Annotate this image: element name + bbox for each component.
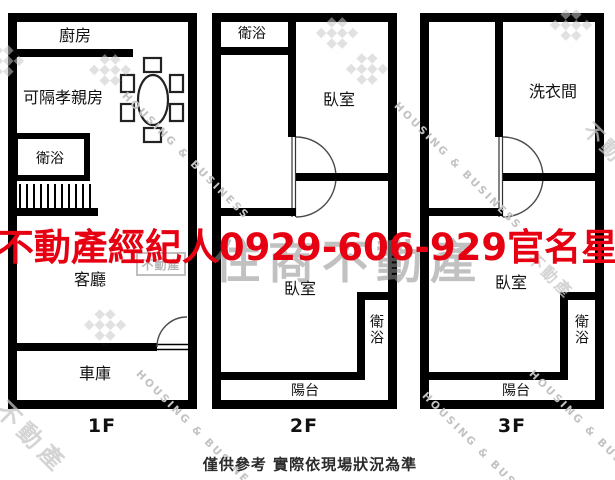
- room-label-laundry: 洗衣間: [529, 78, 577, 102]
- room-label-bathroom: 衛浴: [571, 314, 591, 346]
- bathroom-rear-wall-top: [357, 292, 388, 300]
- bathroom-wall-left: [560, 292, 568, 380]
- garage-wall: [12, 343, 157, 351]
- laundry-wall: [503, 173, 595, 181]
- room-label-bathroom-front: 衛浴: [238, 23, 266, 43]
- agent-overlay: 不動產經紀人0929-606-929官名星: [0, 217, 615, 271]
- stairs-wall: [12, 208, 98, 216]
- room-label-balcony: 陽台: [291, 380, 319, 400]
- room-label-bedroom: 臥室: [495, 269, 527, 293]
- divider-wall: [288, 17, 296, 137]
- floorplan-3f: 洗衣間 臥室 衛浴 陽台: [420, 13, 604, 409]
- floorplan-image: 廚房 可隔孝親房 衛浴 客廳 車庫 1F 衛浴 臥室 臥室 衛浴 陽台 2F: [0, 0, 615, 480]
- door-threshold: [157, 345, 188, 350]
- door-arc: [157, 317, 187, 347]
- floor-label-2f: 2F: [290, 415, 318, 437]
- stairwell-wall: [216, 208, 296, 216]
- room-label-bathroom-rear: 衛浴: [366, 314, 386, 346]
- bathroom-wall: [216, 47, 296, 55]
- room-label-bathroom: 衛浴: [36, 148, 64, 168]
- floor-label-1f: 1F: [88, 415, 116, 437]
- floorplan-3f-geometry: [420, 13, 604, 409]
- room-label-bedroom-front: 臥室: [323, 86, 355, 110]
- room-label-garage: 車庫: [79, 360, 111, 384]
- room-label-kitchen: 廚房: [59, 22, 91, 46]
- room-label-flex-room: 可隔孝親房: [23, 84, 103, 108]
- room-label-balcony: 陽台: [502, 380, 530, 400]
- stairs-icon: [20, 184, 90, 208]
- stairwell-wall: [424, 208, 503, 216]
- divider-wall: [495, 17, 503, 137]
- balcony-wall: [216, 372, 357, 380]
- door-leaf: [292, 137, 296, 217]
- bathroom-rear-wall-left: [357, 292, 365, 380]
- floor-label-3f: 3F: [498, 415, 526, 437]
- bedroom-wall: [296, 173, 388, 181]
- disclaimer-caption: 僅供參考 實際依現場狀況為準: [203, 454, 417, 475]
